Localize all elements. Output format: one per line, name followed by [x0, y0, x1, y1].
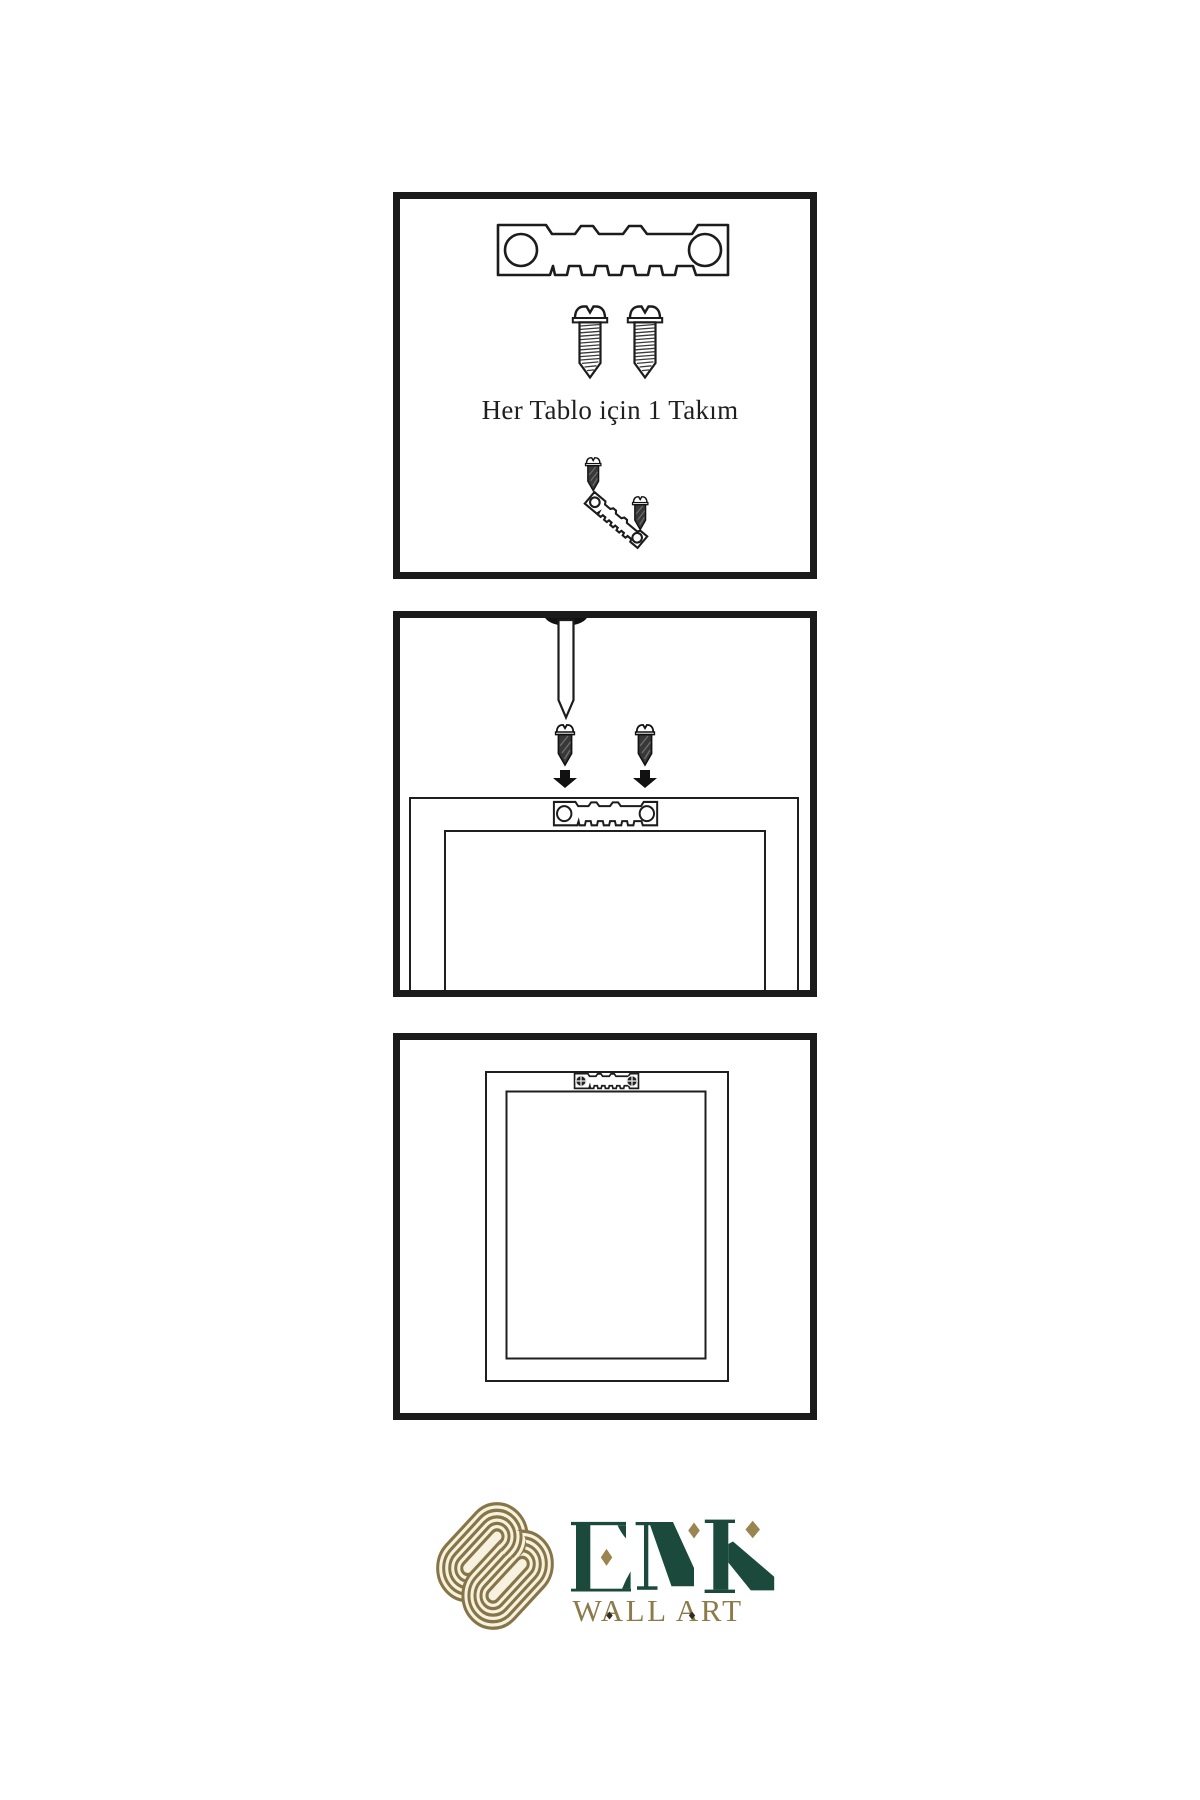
svg-text:WALL ART: WALL ART [572, 1593, 743, 1628]
svg-text:Her Tablo için 1 Takım: Her Tablo için 1 Takım [482, 395, 739, 425]
